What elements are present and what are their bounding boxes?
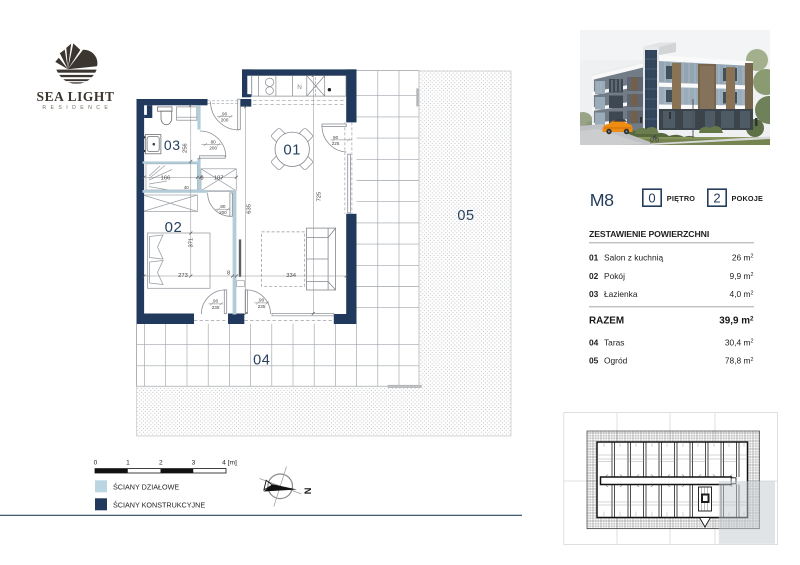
svg-text:9,9 m2: 9,9 m2 (730, 271, 754, 281)
svg-text:8: 8 (227, 271, 230, 277)
svg-text:ŚCIANY DZIAŁOWE: ŚCIANY DZIAŁOWE (113, 483, 179, 492)
svg-text:Taras: Taras (604, 338, 624, 348)
svg-text:05: 05 (457, 208, 474, 224)
svg-text:RAZEM: RAZEM (589, 316, 624, 327)
svg-text:635: 635 (246, 204, 252, 214)
svg-text:235: 235 (212, 305, 220, 310)
svg-text:90: 90 (333, 135, 339, 140)
svg-text:01: 01 (589, 252, 599, 262)
svg-text:107: 107 (214, 176, 224, 182)
svg-text:M8: M8 (590, 190, 614, 210)
svg-text:01: 01 (283, 141, 301, 158)
svg-text:0: 0 (648, 190, 655, 205)
svg-text:166: 166 (161, 176, 171, 182)
svg-text:273: 273 (178, 273, 188, 279)
svg-text:RESIDENCE: RESIDENCE (42, 105, 112, 111)
svg-text:4 [m]: 4 [m] (222, 460, 237, 467)
svg-text:40: 40 (184, 185, 189, 190)
svg-text:4,0 m2: 4,0 m2 (730, 289, 754, 299)
svg-text:235: 235 (258, 304, 266, 309)
svg-text:ŚCIANY KONSTRUKCYJNE: ŚCIANY KONSTRUKCYJNE (113, 501, 205, 510)
svg-text:Salon z kuchnią: Salon z kuchnią (604, 252, 663, 262)
svg-text:3: 3 (192, 460, 196, 467)
svg-text:1: 1 (126, 460, 130, 467)
svg-text:02: 02 (165, 219, 183, 236)
svg-text:256: 256 (182, 143, 188, 153)
svg-text:2: 2 (713, 190, 720, 205)
svg-text:39,9 m2: 39,9 m2 (719, 315, 754, 326)
svg-text:05: 05 (589, 356, 599, 366)
svg-text:PIĘTRO: PIĘTRO (667, 194, 695, 203)
svg-text:80: 80 (211, 139, 217, 144)
svg-text:90: 90 (259, 298, 265, 303)
svg-text:90: 90 (213, 299, 219, 304)
svg-text:03: 03 (589, 289, 599, 299)
svg-text:0: 0 (94, 460, 98, 467)
svg-text:2: 2 (159, 460, 163, 467)
svg-text:334: 334 (286, 273, 296, 279)
svg-text:725: 725 (316, 192, 322, 202)
svg-text:Łazienka: Łazienka (604, 289, 638, 299)
svg-text:78,8 m2: 78,8 m2 (725, 356, 754, 366)
svg-text:Ogród: Ogród (604, 356, 628, 366)
svg-text:8: 8 (200, 176, 203, 182)
svg-text:26 m2: 26 m2 (732, 252, 754, 262)
svg-text:N: N (303, 488, 313, 495)
svg-text:200: 200 (209, 146, 217, 151)
svg-text:04: 04 (253, 352, 270, 368)
svg-text:04: 04 (589, 338, 599, 348)
svg-text:Pokój: Pokój (604, 271, 625, 281)
svg-text:ZESTAWIENIE POWIERZCHNI: ZESTAWIENIE POWIERZCHNI (589, 229, 709, 239)
svg-text:SEA LIGHT: SEA LIGHT (37, 89, 115, 104)
svg-text:200: 200 (219, 210, 227, 215)
svg-text:200: 200 (221, 118, 229, 123)
svg-text:225: 225 (332, 141, 340, 146)
svg-text:02: 02 (589, 271, 599, 281)
svg-text:371: 371 (189, 238, 195, 248)
svg-text:POKOJE: POKOJE (732, 194, 764, 203)
svg-text:80: 80 (220, 204, 226, 209)
svg-text:N: N (297, 84, 302, 91)
svg-text:90: 90 (222, 111, 228, 116)
svg-text:03: 03 (164, 137, 181, 153)
svg-text:30,4 m2: 30,4 m2 (725, 338, 754, 348)
